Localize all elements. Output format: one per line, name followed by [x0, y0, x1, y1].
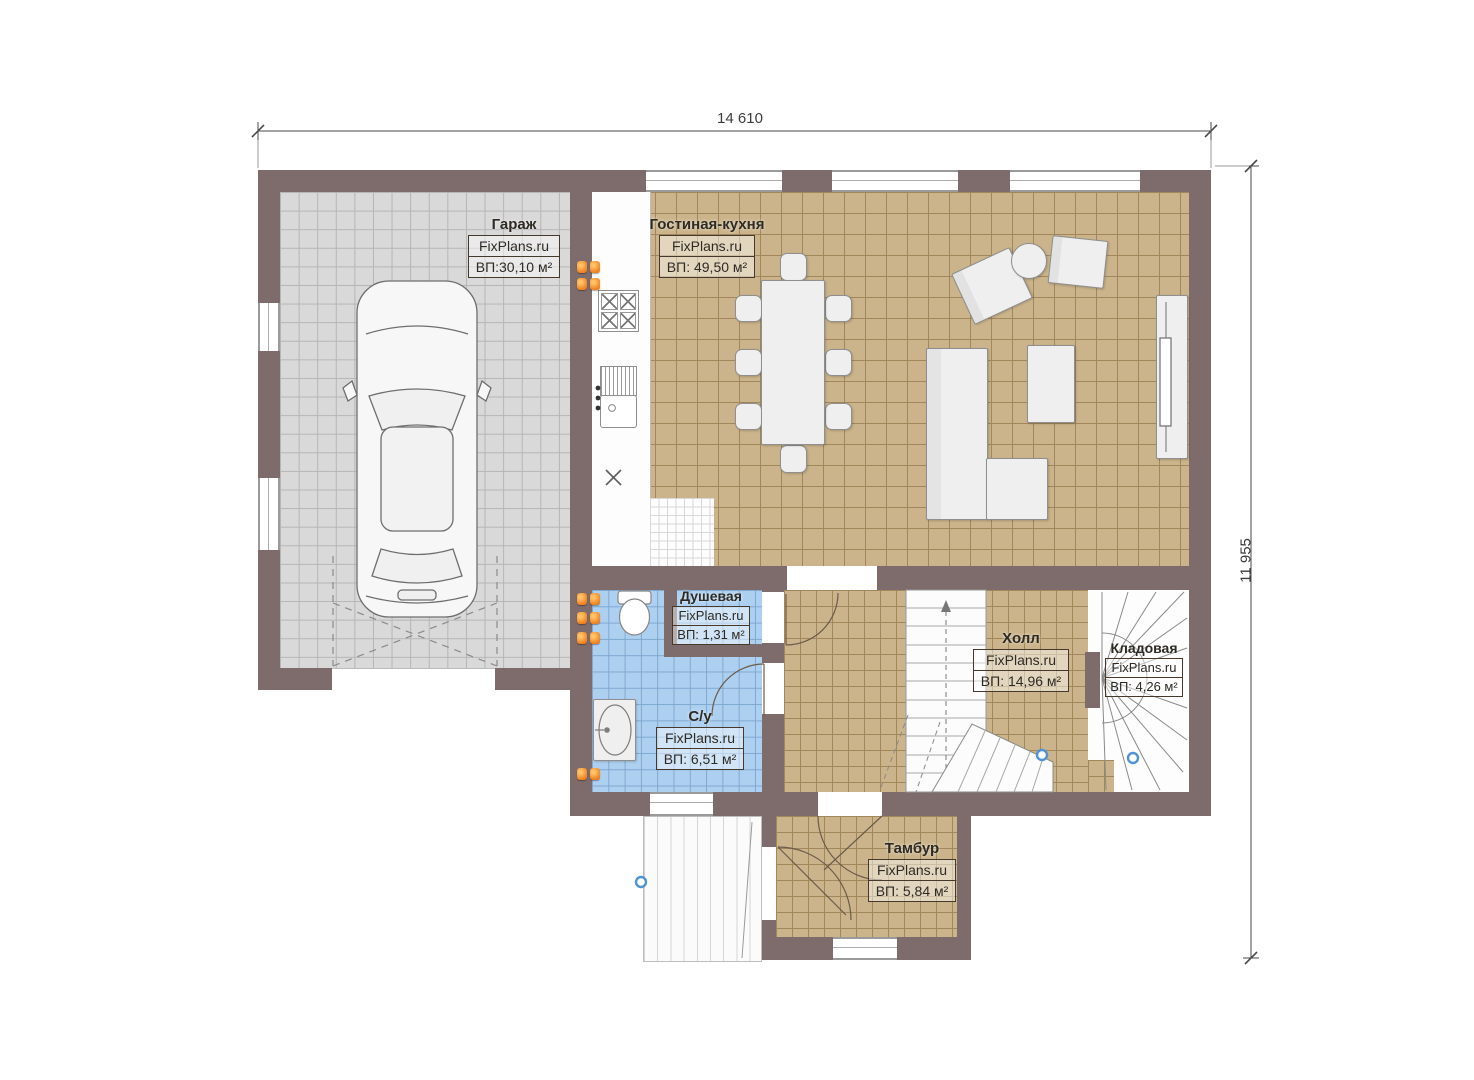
radiator-icon	[577, 768, 600, 780]
room-name-living: Гостиная-кухня	[650, 216, 765, 233]
kitchen-sink-cabinet	[600, 395, 637, 428]
dimension-height-label: 11 955	[1238, 516, 1255, 606]
room-label-wc: С/у FixPlans.ru ВП: 6,51 м²	[640, 708, 760, 770]
dining-chair-right-3	[825, 403, 852, 430]
stove-icon	[598, 290, 639, 332]
watermark-text: FixPlans.ru	[672, 606, 749, 626]
doorway-tambour-entrance	[762, 847, 776, 920]
doorway-living-hall	[787, 566, 877, 590]
window-garage-left-1	[258, 303, 280, 351]
room-label-boxes: FixPlans.ru ВП: 5,84 м²	[868, 859, 957, 902]
window-tambour-bottom	[833, 937, 897, 960]
room-name-hall: Холл	[1002, 630, 1040, 647]
room-label-boxes: FixPlans.ru ВП:30,10 м²	[468, 235, 561, 278]
bathroom-sink-counter	[593, 699, 636, 761]
watermark-text: FixPlans.ru	[656, 727, 745, 749]
side-table-round	[1011, 243, 1047, 279]
sofa-chaise	[986, 458, 1048, 520]
room-label-boxes: FixPlans.ru ВП: 6,51 м²	[656, 727, 745, 770]
room-name-wc: С/у	[688, 708, 711, 725]
dining-chair-left-1	[735, 295, 762, 322]
doorway-hall-tambour	[818, 792, 882, 816]
dining-chair-bottom	[780, 445, 807, 473]
doorway-shower	[762, 592, 784, 643]
dimension-line-top	[252, 122, 1217, 168]
window-living-top-3	[1010, 170, 1140, 192]
watermark-text: FixPlans.ru	[868, 859, 957, 881]
coffee-table	[1027, 345, 1075, 423]
room-label-garage: Гараж FixPlans.ru ВП:30,10 м²	[452, 216, 576, 278]
wall-main-right	[1189, 192, 1211, 816]
radiator-icon	[577, 612, 600, 624]
room-name-tambour: Тамбур	[885, 840, 939, 857]
room-area-text: ВП: 6,51 м²	[656, 749, 745, 770]
wall-garage-top	[258, 170, 592, 192]
dining-chair-right-1	[825, 295, 852, 322]
room-area-text: ВП: 5,84 м²	[868, 881, 957, 902]
watermark-text: FixPlans.ru	[659, 235, 755, 257]
radiator-icon	[577, 261, 600, 273]
room-label-boxes: FixPlans.ru ВП: 49,50 м²	[659, 235, 755, 278]
room-label-boxes: FixPlans.ru ВП: 4,26 м²	[1105, 658, 1182, 697]
room-name-storage: Кладовая	[1110, 640, 1177, 656]
wall-garage-left	[258, 192, 280, 690]
room-name-garage: Гараж	[492, 216, 537, 233]
watermark-text: FixPlans.ru	[1105, 658, 1182, 678]
dining-chair-top	[780, 253, 807, 281]
room-label-shower: Душевая FixPlans.ru ВП: 1,31 м²	[662, 588, 760, 645]
armchair-2	[1048, 235, 1109, 289]
watermark-text: FixPlans.ru	[973, 649, 1069, 671]
dining-chair-right-2	[825, 349, 852, 376]
window-wc-bottom	[650, 792, 713, 816]
tv-console	[1156, 295, 1188, 459]
storage-floor-tan-patch	[1088, 760, 1114, 792]
room-label-hall: Холл FixPlans.ru ВП: 14,96 м²	[962, 630, 1080, 692]
room-area-text: ВП: 1,31 м²	[672, 626, 749, 645]
wall-shower-partition-h	[664, 644, 762, 657]
wall-living-hall-divider	[570, 566, 1211, 590]
room-label-boxes: FixPlans.ru ВП: 14,96 м²	[973, 649, 1069, 692]
kitchen-floor-corner	[650, 498, 714, 566]
doorway-wc	[762, 663, 784, 714]
dining-chair-left-3	[735, 403, 762, 430]
entrance-porch	[643, 816, 762, 962]
watermark-text: FixPlans.ru	[468, 235, 561, 257]
window-living-top-1	[646, 170, 782, 192]
room-label-storage: Кладовая FixPlans.ru ВП: 4,26 м²	[1098, 640, 1190, 697]
room-area-text: ВП: 49,50 м²	[659, 257, 755, 278]
garage-door-opening	[332, 668, 495, 691]
radiator-icon	[577, 632, 600, 644]
dimension-width-label: 14 610	[695, 110, 785, 127]
room-area-text: ВП:30,10 м²	[468, 257, 561, 278]
room-label-tambour: Тамбур FixPlans.ru ВП: 5,84 м²	[853, 840, 971, 902]
room-name-shower: Душевая	[680, 588, 742, 604]
room-area-text: ВП: 4,26 м²	[1105, 678, 1182, 697]
room-area-text: ВП: 14,96 м²	[973, 671, 1069, 692]
room-label-living: Гостиная-кухня FixPlans.ru ВП: 49,50 м²	[642, 216, 772, 278]
radiator-icon	[577, 593, 600, 605]
dining-table	[761, 280, 825, 445]
dining-chair-left-2	[735, 349, 762, 376]
sofa-main	[926, 348, 988, 520]
floor-plan: Гараж FixPlans.ru ВП:30,10 м² Гостиная-к…	[0, 0, 1474, 1080]
radiator-icon	[577, 278, 600, 290]
kitchen-appliance-icon	[600, 366, 637, 396]
window-living-top-2	[832, 170, 958, 192]
window-garage-left-2	[258, 478, 280, 550]
room-label-boxes: FixPlans.ru ВП: 1,31 м²	[672, 606, 749, 645]
